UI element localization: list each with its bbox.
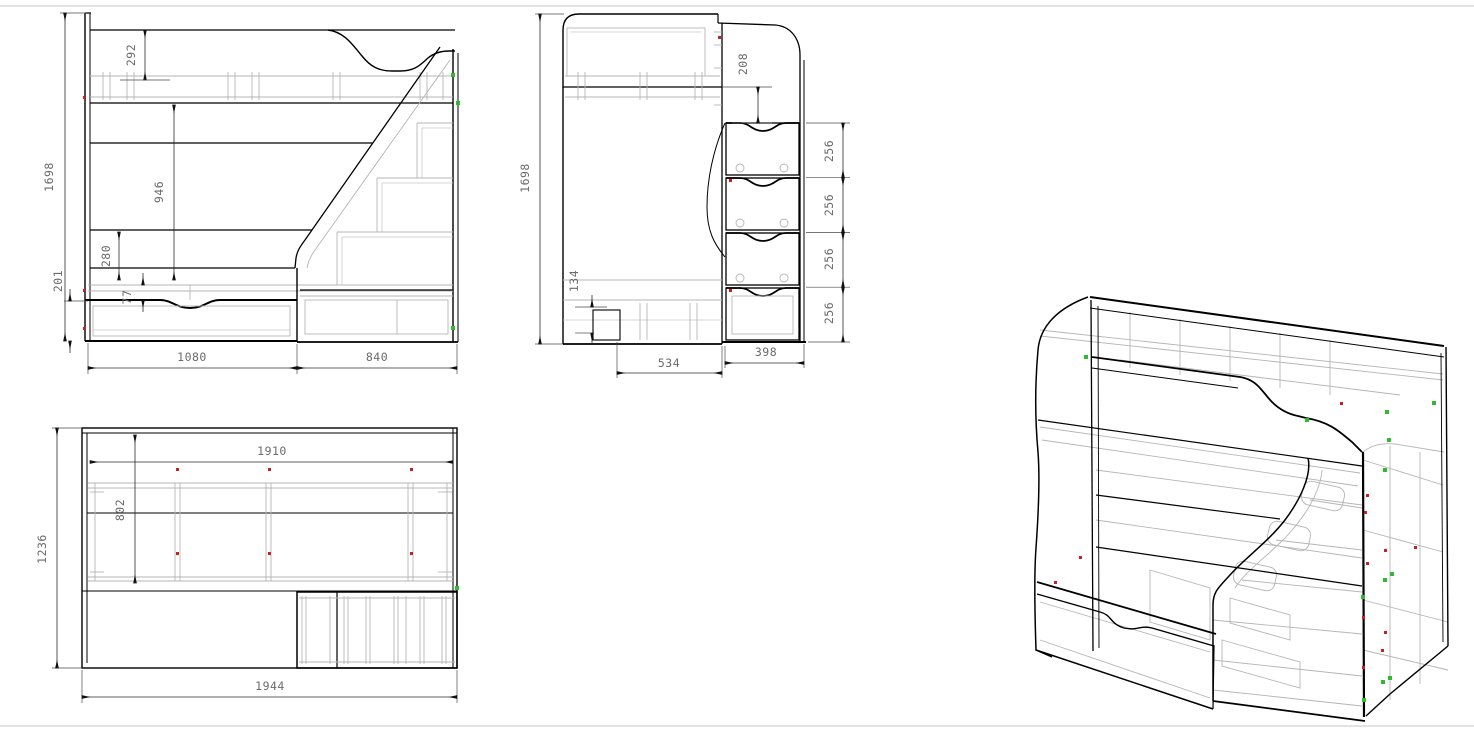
dim-side-step-rises: 256 256 256 256 [806,123,850,342]
stairs-base-front [297,290,458,342]
plan-stairs-module [297,592,457,668]
dim-label: 256 [822,194,836,216]
dim-plan-inner-length: 1910 [90,444,453,462]
hardware-ticks-side-lower [640,303,697,340]
dim-front-base-height: 201 [51,270,88,353]
hardware-ticks-side [578,32,722,105]
dim-label: 1910 [257,444,287,458]
dim-label: 398 [755,345,777,359]
dim-plan-total-length: 1944 [82,670,457,703]
dim-label: 256 [822,140,836,162]
dim-label: 280 [99,245,113,267]
dim-front-bunk-clearance: 946 [152,105,174,280]
marker-dots-side [718,36,732,292]
dim-front-bed-width: 1080 [88,343,297,374]
stair-drawers-side [722,123,806,342]
dim-label: 1698 [42,162,56,192]
dim-label: 208 [736,53,750,75]
dim-front-under-bunk: 280 [99,232,119,280]
technical-drawing: 1698 292 946 280 77 201 [0,0,1474,732]
dim-label: 802 [113,499,127,521]
dim-label: 840 [366,350,388,364]
dim-label: 134 [567,270,581,292]
iso-stairs [1150,470,1362,706]
plan-view: 1910 802 1236 1944 [35,428,459,703]
dim-label: 201 [51,270,65,292]
dim-front-stairs-width: 840 [297,344,457,374]
dim-side-foot-height: 134 [567,270,607,345]
iso-outline [1035,297,1448,721]
dim-plan-total-depth: 1236 [35,428,82,668]
dim-label: 1698 [518,163,532,193]
dim-side-bed-depth: 534 [617,342,722,378]
dim-label: 256 [822,302,836,324]
marker-dots-front [83,73,460,330]
dim-plan-inner-depth: 802 [113,435,135,583]
marker-dots-iso [1054,355,1436,702]
dim-label: 256 [822,248,836,270]
dim-side-total-height: 1698 [518,14,564,344]
stair-steps-front [337,123,453,285]
dim-label: 77 [120,290,134,305]
dim-label: 1944 [255,679,285,693]
iso-3d-view [1035,297,1448,721]
dim-label: 946 [152,181,166,203]
dim-side-stairs-depth: 398 [725,344,804,368]
marker-dots-plan [176,468,459,590]
front-view: 1698 292 946 280 77 201 [42,13,460,374]
dim-label: 534 [658,356,680,370]
dim-label: 1236 [35,534,49,564]
cad-drawing-canvas: 1698 292 946 280 77 201 [0,0,1474,732]
under-bed-drawer-front [85,268,297,342]
dim-side-rail-to-step: 208 [722,53,772,123]
dim-label: 292 [124,44,138,66]
dim-front-guard-rail: 292 [120,30,170,80]
plan-partitions [90,483,452,581]
side-view: 1698 208 256 256 256 256 [518,14,850,378]
dim-label: 1080 [177,350,207,364]
iso-aux-structure [1040,312,1448,700]
